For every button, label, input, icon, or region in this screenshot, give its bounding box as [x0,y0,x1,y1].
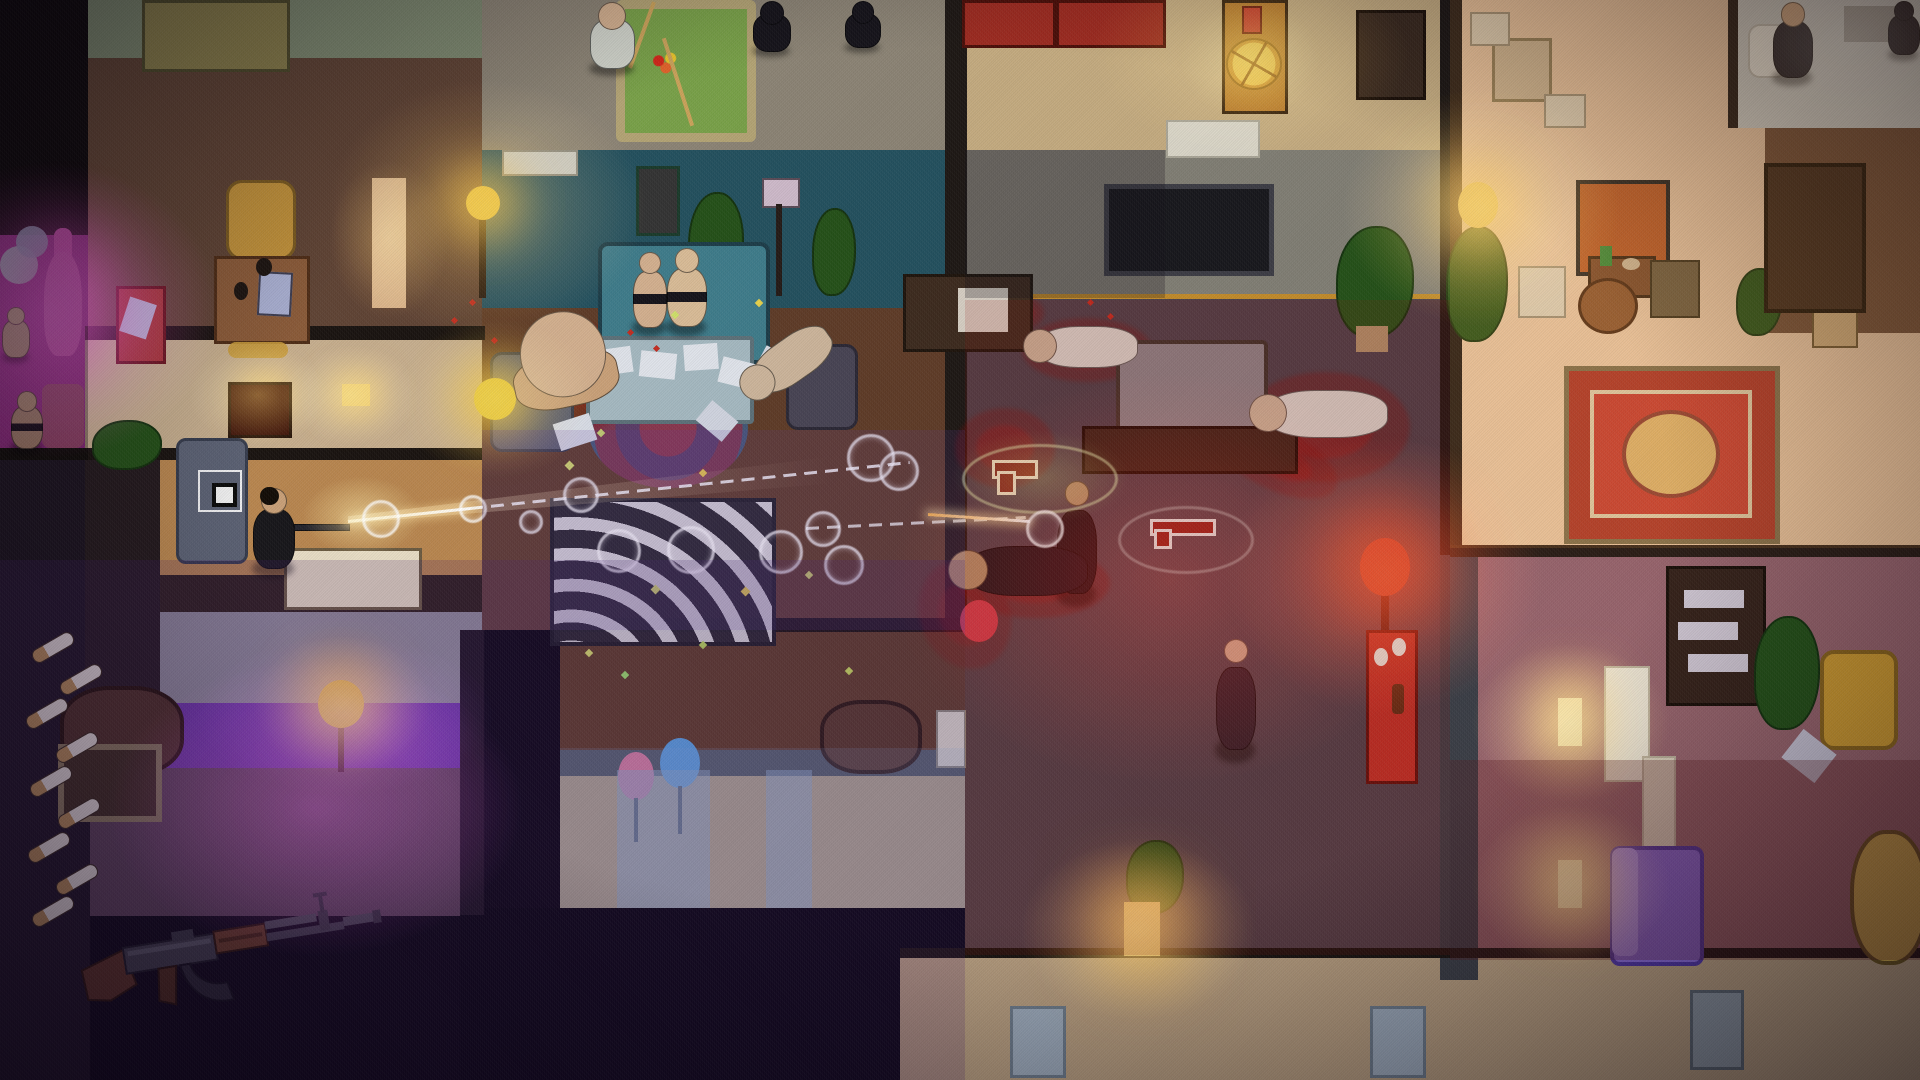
game-viewport[interactable] [0,0,1920,1080]
vignette-overlay [0,0,1920,1080]
